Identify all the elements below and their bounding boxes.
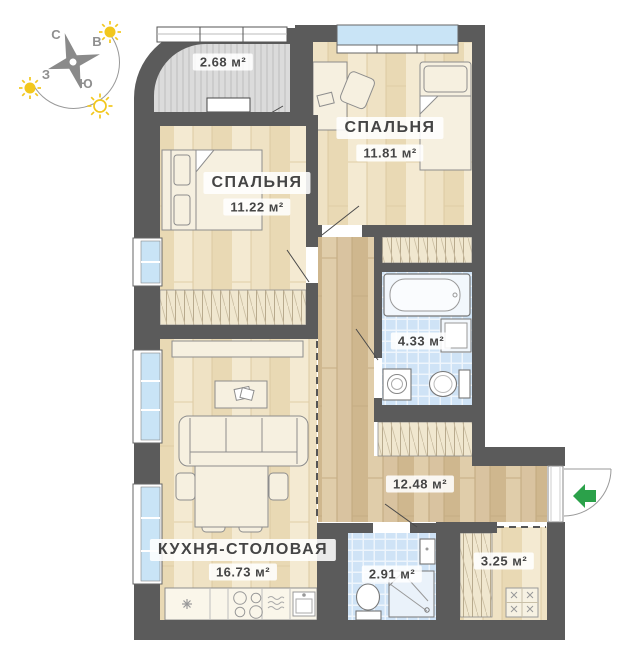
- bedroom-top-area-label: 11.81 м²: [356, 145, 423, 162]
- closet-bedroom-top: [382, 237, 472, 263]
- balcony-area-label: 2.68 м²: [193, 54, 253, 71]
- bedroom-top-window: [337, 25, 458, 53]
- floor-plan-drawing: С В З Ю: [0, 0, 639, 661]
- dining-table: [195, 466, 268, 527]
- single-bed: [420, 62, 471, 170]
- balcony-window: [157, 27, 287, 42]
- bedroom-left-area-label: 11.22 м²: [223, 199, 290, 216]
- bedroom-left-window: [133, 238, 162, 286]
- wardrobe-corridor: [378, 422, 473, 456]
- storage-area-label: 3.25 м²: [474, 553, 534, 570]
- toilet: [430, 370, 471, 398]
- wardrobe-storage: [460, 533, 492, 617]
- kitchen-sink-icon: [293, 592, 315, 616]
- wc-sink: [420, 539, 435, 564]
- kitchen-window: [133, 484, 162, 584]
- kitchen-name-label: КУХНЯ-СТОЛОВАЯ: [150, 539, 336, 561]
- compass: С В З Ю: [19, 21, 121, 119]
- compass-south: Ю: [79, 76, 92, 91]
- compass-west: З: [42, 67, 50, 82]
- fridge-icon: [182, 599, 192, 609]
- compass-north: С: [51, 27, 61, 42]
- dining-chair: [176, 473, 195, 500]
- kitchen-area-label: 16.73 м²: [209, 564, 277, 581]
- corridor-area-label: 12.48 м²: [386, 476, 454, 493]
- compass-east: В: [92, 34, 101, 49]
- bedroom-left-name-label: СПАЛЬНЯ: [203, 172, 310, 194]
- dining-chair: [269, 473, 288, 500]
- washing-machine: [383, 369, 411, 400]
- coffee-table: [215, 381, 267, 408]
- floor-plan-canvas: С В З Ю 2.68 м² СПАЛ: [0, 0, 639, 661]
- storage-tile: [506, 588, 538, 617]
- bedroom-top-name-label: СПАЛЬНЯ: [336, 117, 443, 139]
- living-window: [133, 350, 162, 443]
- sun-icon: [99, 21, 121, 43]
- wc-area-label: 2.91 м²: [362, 566, 422, 583]
- bathroom-area-label: 4.33 м²: [391, 333, 451, 350]
- entrance-arrow-icon: [573, 484, 596, 508]
- sideboard: [172, 341, 303, 357]
- sofa: [179, 416, 308, 466]
- wardrobe-bedroom-left: [160, 290, 306, 325]
- kitchen-counter: [165, 588, 317, 620]
- sun-icon: [19, 77, 41, 99]
- bathtub: [384, 274, 470, 316]
- wc-toilet: [356, 584, 381, 620]
- sun-outline-icon: [88, 94, 113, 119]
